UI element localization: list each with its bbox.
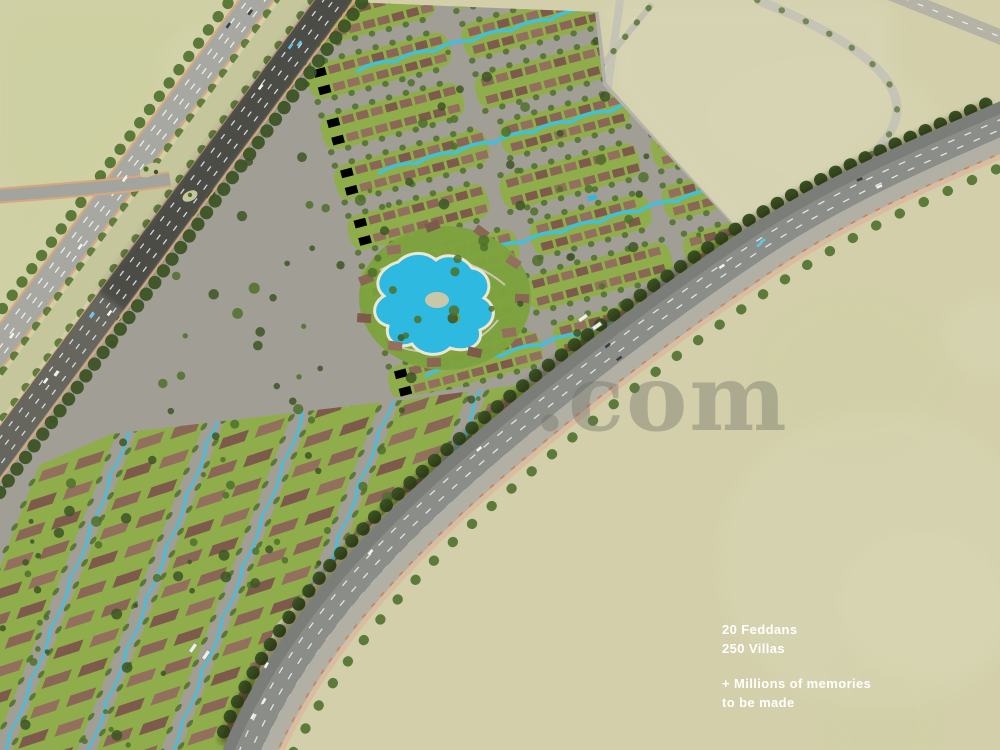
stats-caption: 20 Feddans 250 Villas + Millions of memo…: [722, 620, 871, 712]
feddans-stat: 20 Feddans: [722, 622, 798, 637]
tagline-1: + Millions of memories: [722, 676, 871, 691]
tagline-2: to be made: [722, 695, 795, 710]
stats-lines: 20 Feddans 250 Villas: [722, 620, 871, 658]
masterplan-rendering: .com 20 Feddans 250 Villas + Millions of…: [0, 0, 1000, 750]
tagline-lines: + Millions of memories to be made: [722, 674, 871, 712]
villas-stat: 250 Villas: [722, 641, 785, 656]
